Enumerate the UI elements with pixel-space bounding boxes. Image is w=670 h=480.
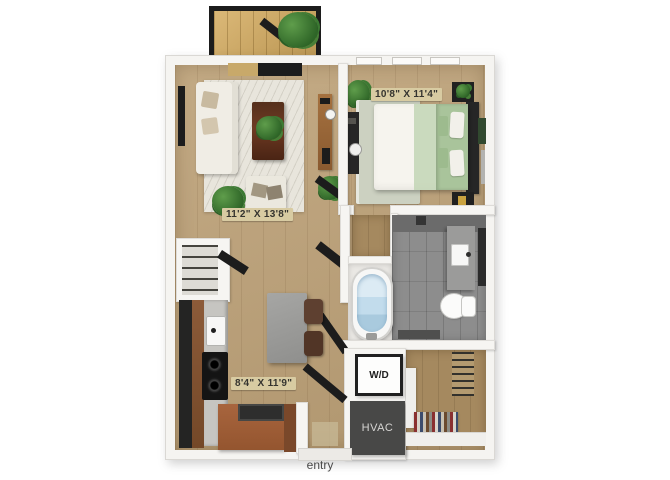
balcony-door-threshold bbox=[228, 63, 258, 76]
console-decor bbox=[320, 98, 330, 104]
bedroom-mirror bbox=[481, 150, 485, 184]
bathroom-mirror bbox=[478, 228, 486, 286]
bedroom-dims-text: 10'8" X 11'4" bbox=[375, 89, 438, 100]
hvac-closet: HVAC bbox=[350, 401, 405, 455]
closet-tub-wall bbox=[348, 256, 392, 264]
console-decor bbox=[322, 148, 330, 164]
pantry-shelves bbox=[182, 245, 218, 295]
floor-lamp bbox=[326, 110, 335, 119]
floor-plan: W/D HVAC 11'2" X 13'8" 10'8" X 11'4" 8'4… bbox=[0, 0, 670, 480]
bedroom-window bbox=[430, 57, 460, 65]
tub-faucet bbox=[366, 333, 377, 340]
washer-dryer-label: W/D bbox=[369, 370, 388, 381]
ottoman-pillow bbox=[266, 185, 283, 200]
bed-pillow-white bbox=[449, 112, 464, 139]
peninsula-tray bbox=[238, 404, 284, 421]
desk-decor bbox=[348, 118, 356, 124]
sofa-pillow bbox=[201, 117, 219, 135]
bedroom-window bbox=[392, 57, 422, 65]
bar-stool bbox=[304, 299, 323, 324]
tv bbox=[178, 86, 185, 146]
kitchen-faucet bbox=[211, 328, 216, 333]
bed-pillow-green bbox=[438, 148, 448, 168]
kitchen-island bbox=[267, 293, 307, 363]
coffee-table-plant bbox=[256, 116, 282, 140]
kitchen-sink bbox=[206, 316, 226, 346]
closet-bottom-shelf bbox=[406, 432, 486, 446]
bed-throw-blanket bbox=[414, 104, 436, 190]
desk-chair bbox=[350, 144, 361, 155]
kitchen-tall-cabinets bbox=[179, 300, 192, 448]
balcony-potted-plant bbox=[278, 12, 318, 48]
bedroom-wall-art bbox=[478, 118, 486, 144]
kitchen-dims-text: 8'4" X 11'9" bbox=[235, 378, 292, 389]
bathtub-water bbox=[357, 274, 387, 332]
balcony-sliding-door bbox=[258, 63, 302, 76]
entry-label: entry bbox=[290, 458, 350, 472]
entry-doormat bbox=[312, 422, 338, 446]
sink-faucet bbox=[466, 252, 471, 257]
bar-stool bbox=[304, 331, 323, 356]
bedroom-window bbox=[356, 57, 382, 65]
toilet-tank bbox=[462, 297, 475, 316]
bedroom-closet-floor bbox=[352, 215, 390, 258]
sofa-pillow bbox=[201, 91, 220, 110]
hanging-clothes bbox=[414, 412, 458, 432]
washer-dryer-closet: W/D bbox=[355, 354, 403, 396]
kitchen-dims-label: 8'4" X 11'9" bbox=[231, 377, 296, 390]
cooktop-burner bbox=[206, 356, 223, 373]
hvac-label: HVAC bbox=[362, 422, 394, 434]
bedroom-dims-label: 10'8" X 11'4" bbox=[371, 88, 442, 101]
shower-fixture bbox=[416, 216, 426, 225]
closet-shelving bbox=[452, 352, 474, 396]
entry-wall-stub bbox=[296, 402, 308, 454]
cooktop-burner bbox=[206, 377, 223, 394]
bedroom-south-wall bbox=[390, 205, 495, 215]
bath-mat bbox=[398, 330, 440, 339]
living-room-dims-text: 11'2" X 13'8" bbox=[226, 209, 289, 220]
nightstand-plant bbox=[456, 84, 470, 98]
living-room-dims-label: 11'2" X 13'8" bbox=[222, 208, 293, 221]
entry-text: entry bbox=[307, 458, 334, 472]
bed-pillow-white bbox=[449, 150, 464, 177]
bed-pillow-green bbox=[438, 116, 448, 136]
living-bedroom-wall bbox=[338, 63, 348, 209]
